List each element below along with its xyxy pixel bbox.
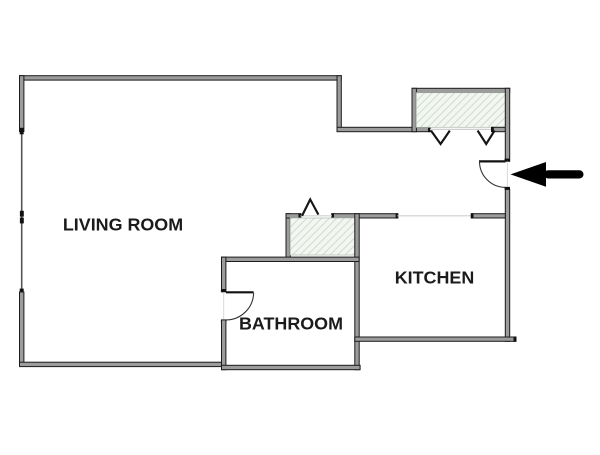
svg-text:BATHROOM: BATHROOM <box>239 314 343 334</box>
svg-text:KITCHEN: KITCHEN <box>395 268 475 288</box>
svg-text:LIVING ROOM: LIVING ROOM <box>63 215 183 235</box>
